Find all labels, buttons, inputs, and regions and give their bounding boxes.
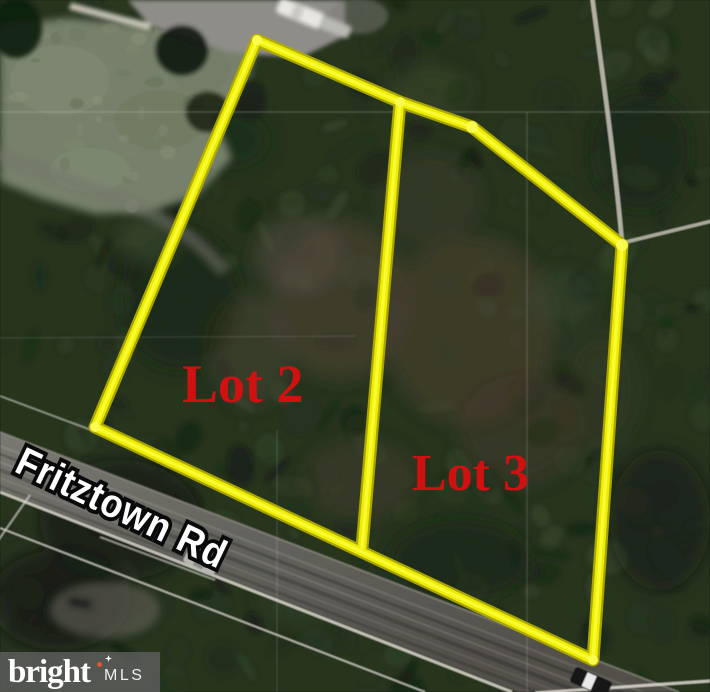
boundary-node <box>252 35 262 45</box>
shadow-patch <box>390 520 530 600</box>
satellite-imagery: Lot 2 Lot 3 Fritztown Rd <box>0 0 710 692</box>
lawn-texture-blob <box>51 32 61 46</box>
lawn-texture-blob <box>131 33 147 45</box>
brush-patch <box>560 330 640 450</box>
lawn-texture-blob <box>145 77 164 87</box>
brush-patch <box>255 215 345 295</box>
lawn-texture-blob <box>41 32 50 39</box>
boundary-node <box>466 121 478 133</box>
lawn-texture-blob <box>102 23 119 33</box>
boundary-node <box>395 97 405 107</box>
aerial-map: Lot 2 Lot 3 Fritztown Rd bright MLS <box>0 0 710 692</box>
lot2-label: Lot 2 <box>182 354 304 414</box>
lawn-texture-blob <box>56 19 66 25</box>
texture-blob <box>457 16 483 40</box>
lawn-texture-blob <box>60 157 70 172</box>
brightmls-star-icon <box>105 655 112 662</box>
boundary-node <box>616 239 628 251</box>
lawn-texture-blob <box>76 122 82 137</box>
watermark: bright MLS <box>0 652 160 692</box>
lawn-texture-blob <box>70 98 84 109</box>
lawn-texture-blob <box>158 124 168 136</box>
texture-blob <box>162 591 171 617</box>
lawn-texture-blob <box>9 92 30 102</box>
watermark-suffix: MLS <box>104 667 144 685</box>
lot3-label: Lot 3 <box>412 445 529 502</box>
canopy-highlight <box>525 270 595 330</box>
lawn-texture-blob <box>157 137 166 142</box>
lawn-texture-blob <box>63 138 84 151</box>
roadside-clearing <box>50 582 160 638</box>
lawn-texture-blob <box>118 135 129 142</box>
lawn-texture-blob <box>126 171 139 180</box>
boundary-node <box>588 655 598 665</box>
boundary-node <box>90 422 100 432</box>
lawn-texture-blob <box>31 58 40 62</box>
lawn-texture-blob <box>116 69 132 76</box>
lawn-texture-blob <box>125 45 140 55</box>
lawn-texture-blob <box>123 152 136 157</box>
lawn-texture-blob <box>68 28 85 42</box>
brightmls-spark-icon <box>97 662 102 667</box>
shadow-patch <box>610 450 710 590</box>
lawn-texture-blob <box>139 105 145 120</box>
bush <box>156 25 208 75</box>
lawn-texture-blob <box>92 95 103 105</box>
brightmls-logo: bright <box>8 652 90 692</box>
lawn-texture-blob <box>160 145 175 159</box>
lawn-texture-blob <box>95 116 102 123</box>
